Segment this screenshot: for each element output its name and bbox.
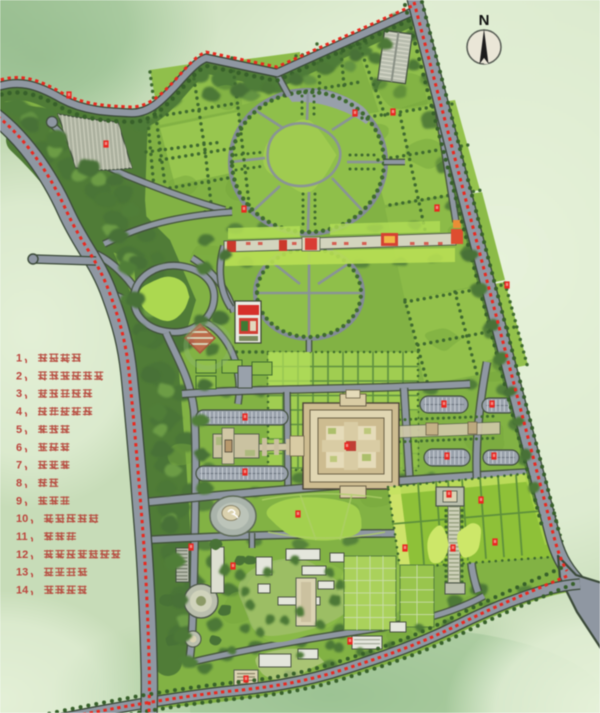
svg-text:4: 4 (16, 406, 23, 418)
svg-text:6: 6 (16, 442, 22, 454)
svg-text:11: 11 (16, 531, 28, 543)
svg-text:2: 2 (16, 370, 22, 382)
svg-text:12: 12 (16, 549, 28, 561)
svg-text:8: 8 (16, 478, 22, 490)
svg-text:1: 1 (16, 353, 22, 365)
svg-text:N: N (479, 12, 490, 29)
svg-text:7: 7 (16, 460, 22, 472)
svg-text:10: 10 (16, 513, 28, 525)
svg-text:13: 13 (16, 567, 28, 579)
svg-text:14: 14 (16, 585, 29, 597)
svg-text:5: 5 (16, 424, 22, 436)
svg-text:3: 3 (16, 388, 22, 400)
svg-text:9: 9 (16, 495, 22, 507)
